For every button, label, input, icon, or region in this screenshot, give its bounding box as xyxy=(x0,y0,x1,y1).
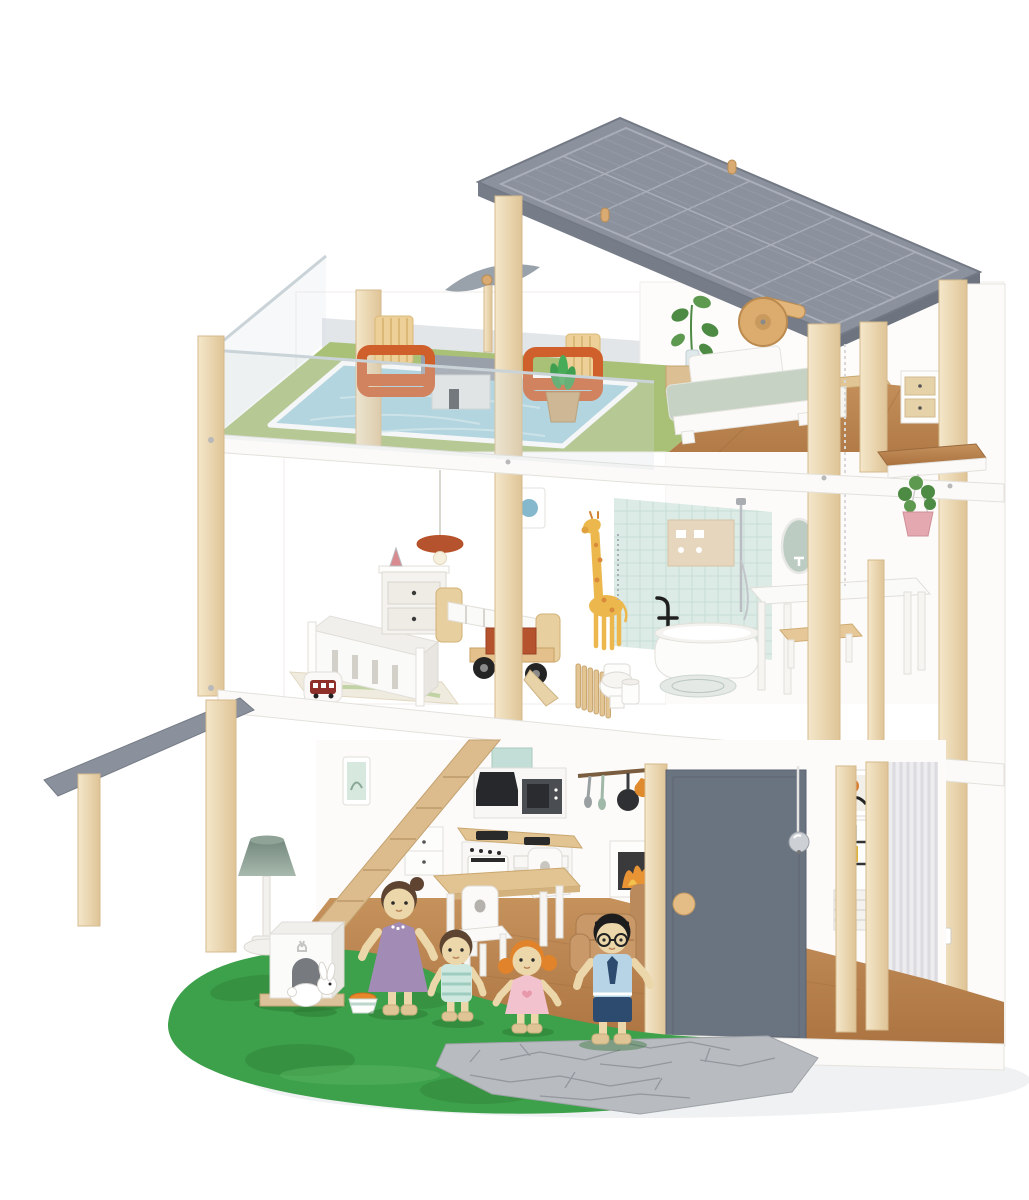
kitchen-upper-cabinet xyxy=(474,768,566,818)
dollhouse-product-photo: 39 xyxy=(0,0,1029,1200)
lamp-shade xyxy=(238,840,296,876)
wood-post-sideroom-left xyxy=(836,766,856,1032)
door-frame-post xyxy=(645,764,667,1038)
side-room-wallpaper xyxy=(888,762,938,1000)
right-outer-wall xyxy=(967,284,1005,1046)
drawer-unit xyxy=(901,371,939,423)
mom-face xyxy=(384,889,415,920)
elevator-post xyxy=(868,560,884,752)
door-knob xyxy=(673,893,695,915)
pet-food-bowl xyxy=(349,993,377,1013)
wood-post-sideroom-right xyxy=(866,762,888,1030)
wood-post-ground-left xyxy=(206,700,236,952)
wood-post-right-upper xyxy=(860,322,887,472)
girl-face xyxy=(513,947,542,976)
boy-face xyxy=(442,937,470,965)
kitchen-backsplash xyxy=(492,748,532,770)
roof-peg xyxy=(728,160,736,174)
carport-post xyxy=(78,774,100,926)
microwave xyxy=(522,779,562,814)
plant-pot xyxy=(903,512,933,536)
range-hood xyxy=(476,772,518,790)
roof-peg xyxy=(601,208,609,222)
dad-shorts xyxy=(593,997,632,1022)
stair-wall-picture xyxy=(343,757,370,805)
dollhouse-illustration: 39 xyxy=(0,0,1029,1200)
front-door xyxy=(666,770,806,1044)
wood-post-front-left xyxy=(198,336,224,696)
